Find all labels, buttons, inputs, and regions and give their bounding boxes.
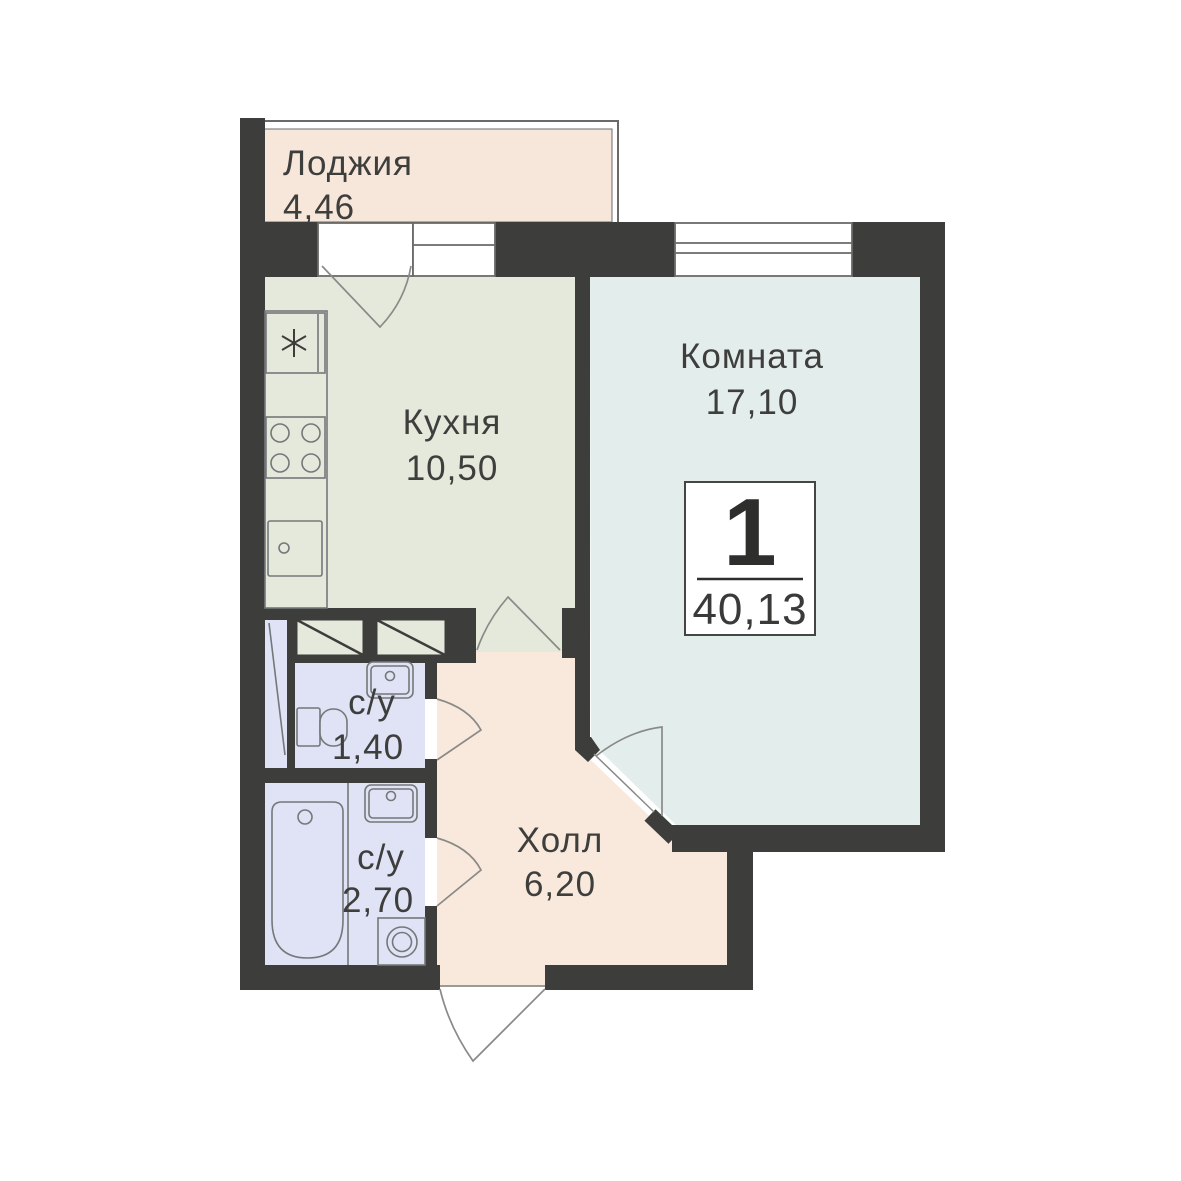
- kitchen-window: [413, 223, 495, 276]
- kitchen-label: Кухня: [403, 403, 502, 442]
- top-wall-segment-3: [852, 222, 945, 277]
- entrance-door-swing-icon: [440, 989, 545, 1061]
- wc-small-right-wall-top: [425, 655, 437, 699]
- wc-small-right-wall-bottom: [425, 759, 437, 783]
- bottom-wall-left: [240, 965, 440, 990]
- top-wall-segment-2: [495, 222, 675, 277]
- hall-label: Холл: [517, 821, 604, 860]
- bottom-wall-right: [545, 965, 753, 990]
- kitchen-fixtures: [265, 311, 327, 608]
- wc-big-right-wall-bottom: [425, 906, 437, 965]
- room-bottom-wall: [672, 825, 945, 852]
- bathtub-icon: [272, 802, 343, 958]
- wc-small-area: 1,40: [332, 728, 404, 767]
- kitchen-door-left-pillar: [447, 608, 476, 663]
- badge-total-area: 40,13: [692, 585, 807, 634]
- floor-plan: Лоджия 4,46 Кухня 10,50 Комната 17,10 с/…: [0, 0, 1181, 1181]
- floor-plan-svg: Лоджия 4,46 Кухня 10,50 Комната 17,10 с/…: [0, 0, 1181, 1181]
- living-room-area: 17,10: [706, 383, 799, 422]
- wc-big-area: 2,70: [342, 881, 414, 920]
- toilet-icon: [297, 708, 320, 746]
- loggia-label: Лоджия: [283, 144, 413, 183]
- kitchen-area: 10,50: [406, 449, 499, 488]
- top-wall-segment-1: [265, 222, 318, 277]
- sink-icon: [365, 785, 417, 822]
- outer-wall-right: [920, 277, 945, 852]
- wc-divider-wall: [240, 768, 437, 783]
- balcony-door-slot: [318, 223, 413, 276]
- hall-area: 6,20: [524, 865, 596, 904]
- wc-small-label: с/у: [348, 683, 396, 722]
- washing-machine-icon: [378, 918, 425, 965]
- loggia-area: 4,46: [283, 188, 355, 227]
- wc-big-label: с/у: [357, 838, 405, 877]
- room-window: [675, 223, 852, 276]
- wc-big-right-wall-top: [425, 783, 437, 838]
- apartment-badge: 1 40,13: [685, 479, 815, 635]
- kitchen-door-right-jamb: [562, 608, 590, 658]
- kitchen-sink-icon: [268, 521, 322, 576]
- living-room-label: Комната: [680, 337, 824, 376]
- outer-wall-left: [240, 118, 265, 990]
- kitchen-room-divider-wall: [575, 277, 590, 742]
- badge-rooms-count: 1: [723, 479, 776, 586]
